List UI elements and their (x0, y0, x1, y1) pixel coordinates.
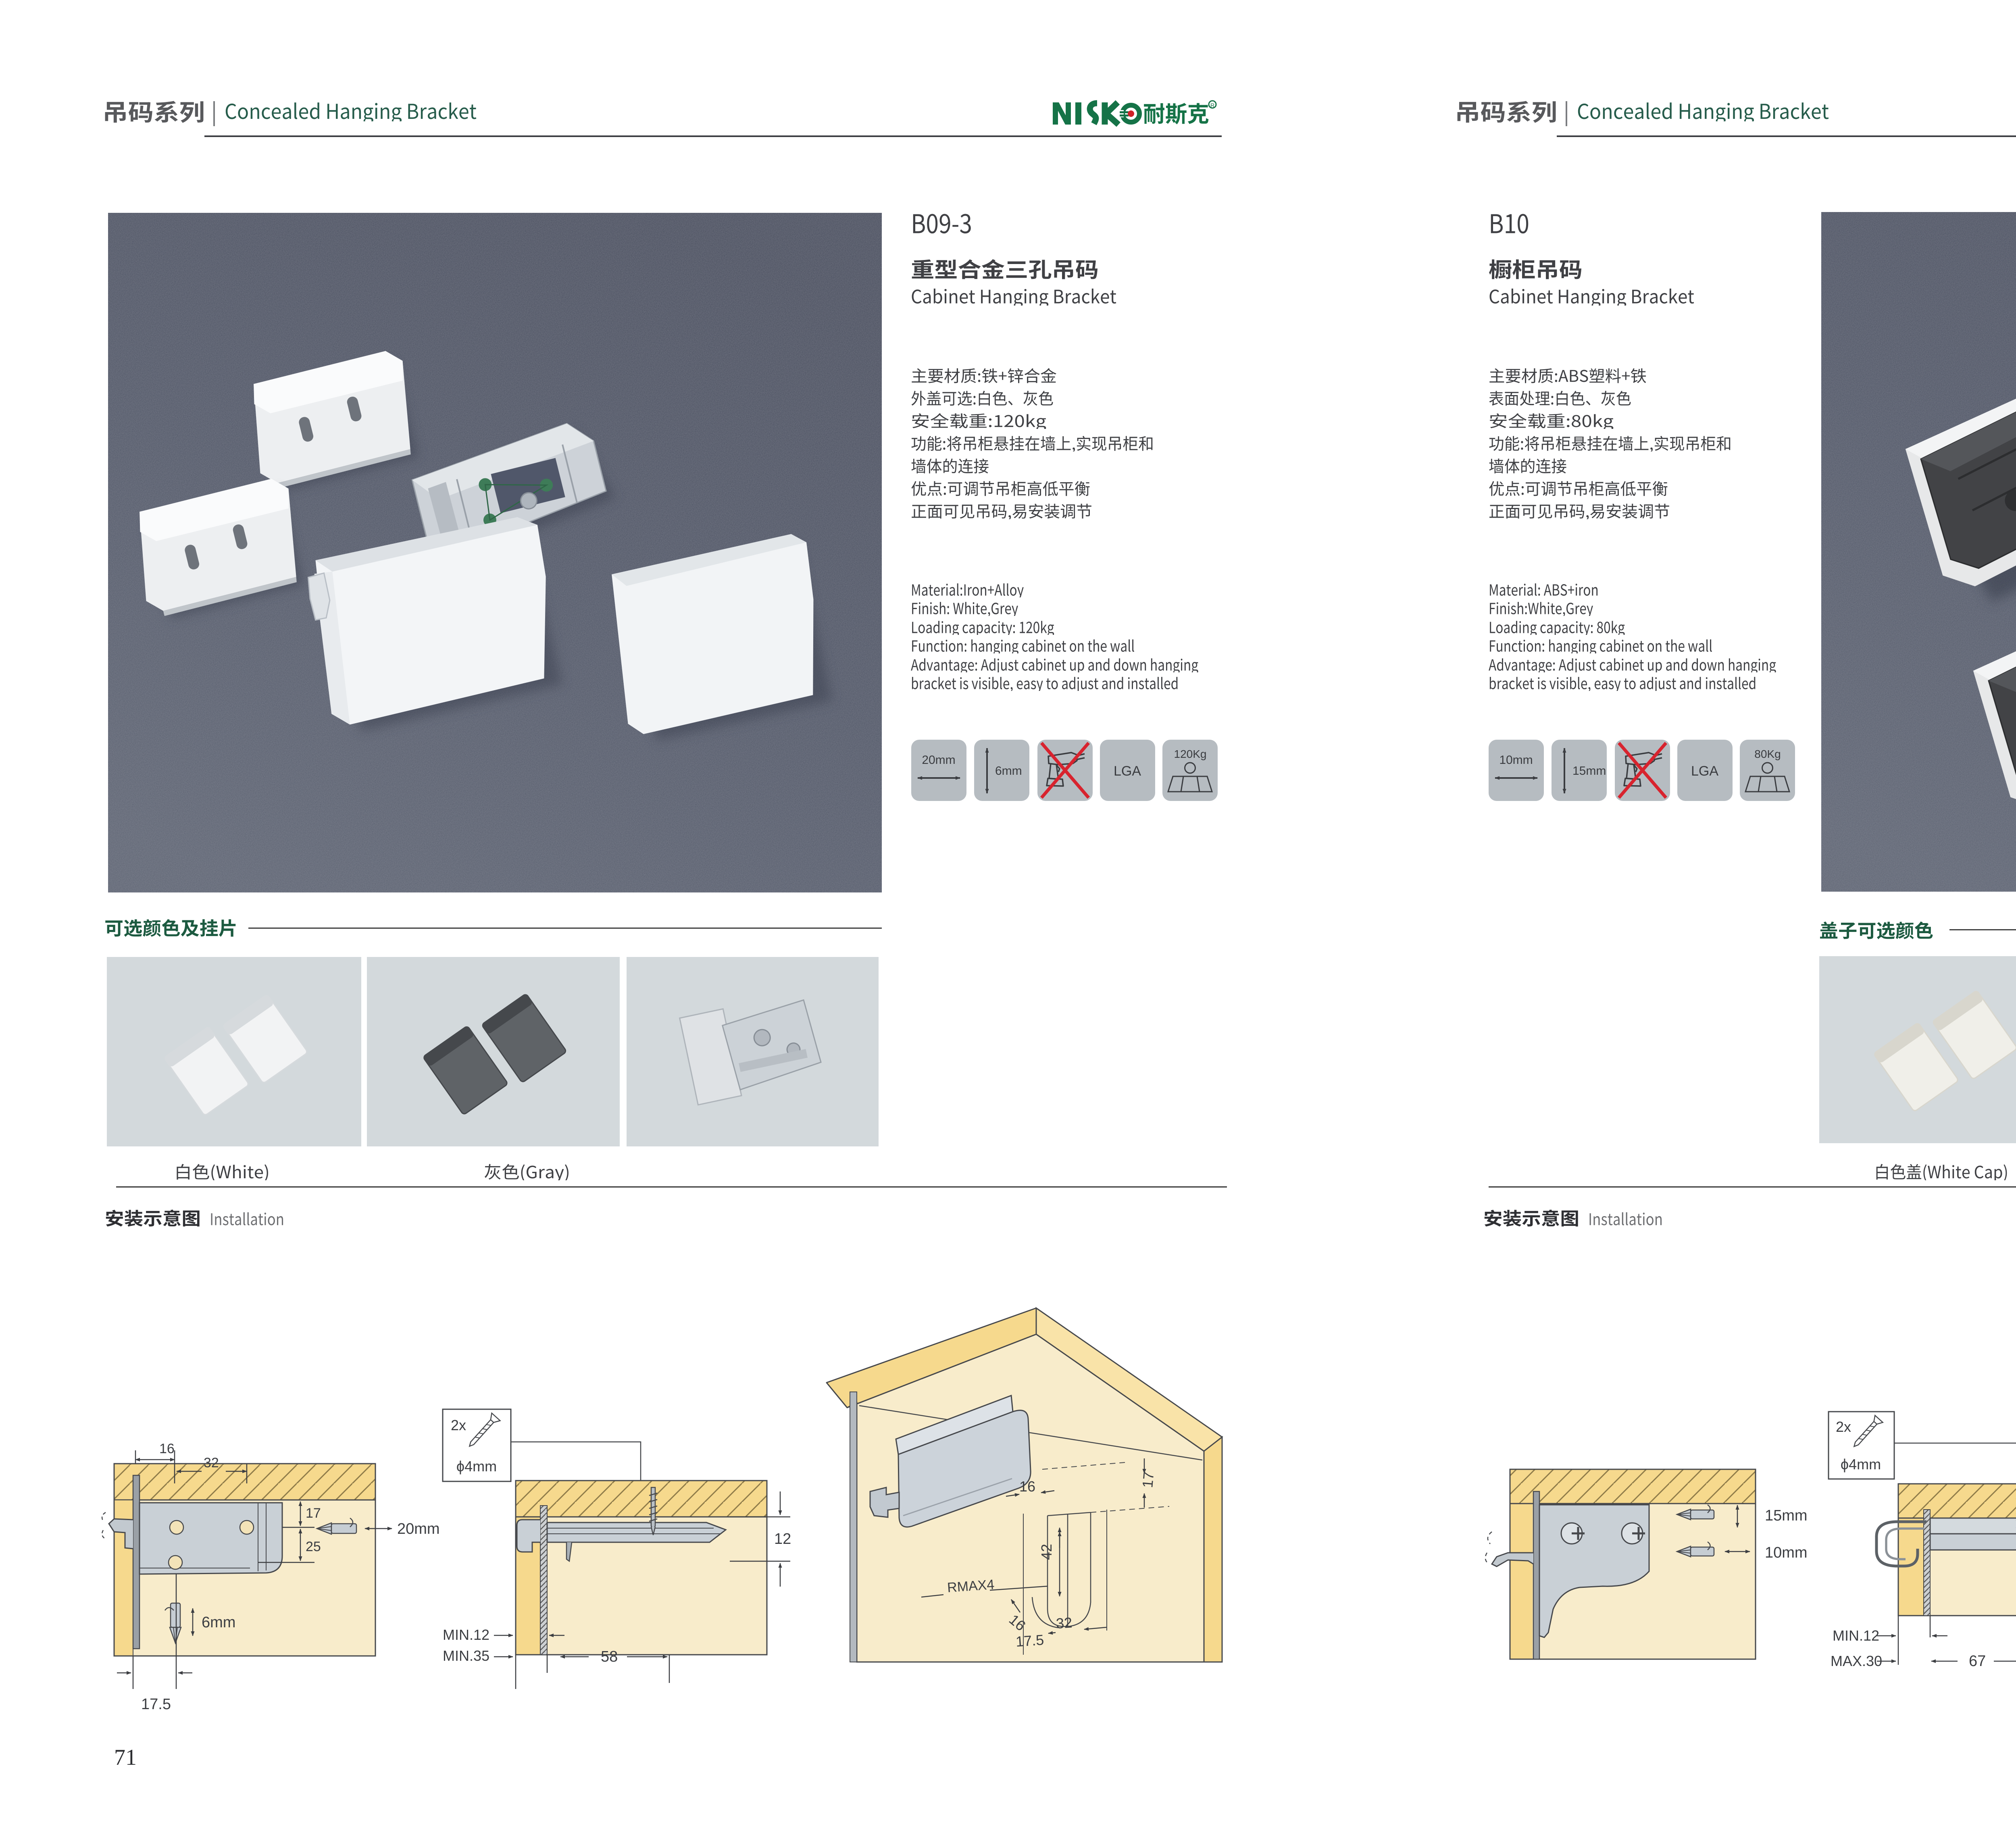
svg-text:58: 58 (601, 1648, 618, 1665)
svg-text:20mm: 20mm (397, 1520, 440, 1537)
svg-text:120Kg: 120Kg (1174, 748, 1207, 760)
svg-text:32: 32 (1056, 1614, 1073, 1632)
svg-text:ϕ4mm: ϕ4mm (1841, 1456, 1881, 1473)
svg-text:MIN.35: MIN.35 (443, 1647, 489, 1664)
svg-text:80Kg: 80Kg (1754, 748, 1781, 760)
svg-text:42: 42 (1038, 1544, 1055, 1560)
svg-text:25: 25 (306, 1539, 321, 1554)
svg-text:6mm: 6mm (995, 764, 1022, 778)
svg-text:17.5: 17.5 (141, 1696, 171, 1713)
svg-text:2x: 2x (1836, 1419, 1851, 1435)
svg-text:17.5: 17.5 (1015, 1631, 1045, 1650)
svg-text:71: 71 (114, 1745, 137, 1770)
svg-text:MIN.12: MIN.12 (443, 1627, 489, 1643)
svg-text:16: 16 (159, 1441, 175, 1456)
svg-text:67: 67 (1969, 1653, 1986, 1670)
svg-text:LGA: LGA (1114, 763, 1141, 779)
svg-text:32: 32 (204, 1455, 219, 1471)
svg-text:17: 17 (1139, 1471, 1157, 1488)
svg-text:MIN.12: MIN.12 (1833, 1627, 1879, 1644)
svg-text:15mm: 15mm (1572, 764, 1606, 778)
svg-text:15mm: 15mm (1765, 1507, 1808, 1524)
svg-text:LGA: LGA (1691, 763, 1718, 779)
svg-text:ϕ4mm: ϕ4mm (456, 1458, 497, 1475)
svg-text:10mm: 10mm (1499, 753, 1533, 767)
svg-text:6mm: 6mm (202, 1614, 235, 1631)
svg-text:12: 12 (774, 1531, 791, 1547)
svg-text:17: 17 (306, 1506, 321, 1521)
svg-text:2x: 2x (451, 1417, 466, 1433)
svg-text:20mm: 20mm (922, 753, 955, 767)
svg-text:MAX.30: MAX.30 (1831, 1653, 1882, 1669)
svg-text:16: 16 (1019, 1478, 1035, 1495)
svg-text:10mm: 10mm (1765, 1544, 1808, 1561)
